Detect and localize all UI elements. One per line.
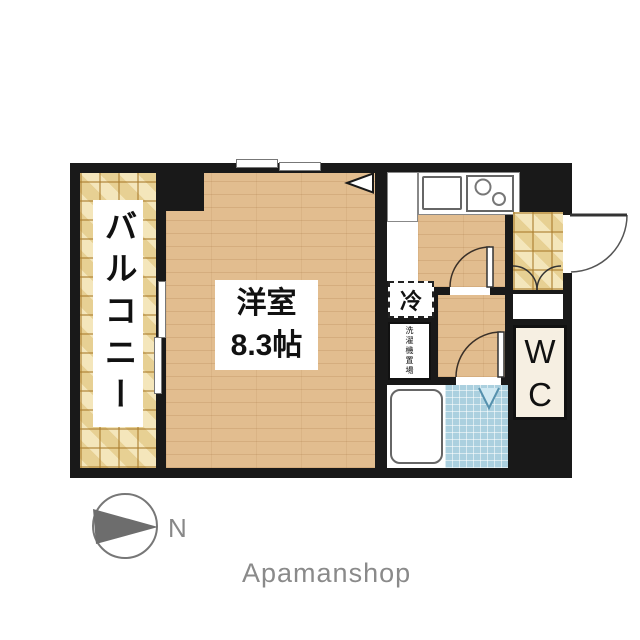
wc-letter-c: C	[528, 373, 552, 416]
wc-letter-w: W	[524, 330, 555, 373]
bathtub-icon	[390, 389, 443, 464]
compass-north-label: N	[168, 513, 187, 544]
balcony-window-pane-lower	[154, 337, 162, 394]
stove-icon	[466, 175, 514, 212]
compass-circle-icon	[93, 494, 157, 558]
brand-logo: Apamanshop	[242, 558, 411, 589]
kitchen-floor	[418, 215, 505, 287]
front-door-swing	[571, 215, 627, 272]
sink-icon	[422, 176, 462, 210]
laundry-space: 洗濯機置場	[388, 322, 431, 380]
hallway-floor	[438, 295, 505, 377]
kitchen-doorway	[450, 287, 490, 295]
floorplan-page: バルコニー 洋室 8.3帖 冷 洗濯機置場 W C	[0, 0, 640, 640]
entrance-genkan	[513, 212, 563, 290]
balcony-label: バルコニー	[93, 200, 143, 427]
front-door-opening	[563, 215, 572, 273]
main-room-label: 洋室 8.3帖	[215, 280, 318, 370]
top-window-pane-right	[279, 162, 321, 171]
shoe-closet	[513, 294, 563, 319]
fridge-space: 冷	[388, 281, 434, 318]
bathroom-tile-floor	[445, 385, 508, 468]
balcony-window-pane-upper	[158, 281, 166, 338]
wall-notch	[166, 173, 204, 211]
wc-room: W C	[513, 325, 567, 420]
top-window-pane-left	[236, 159, 278, 168]
kitchen-cabinet	[387, 172, 418, 222]
kitchen-cabinet-lower	[387, 222, 418, 281]
north-arrow-icon	[93, 509, 158, 544]
main-room-size: 8.3帖	[231, 325, 303, 367]
main-room-name: 洋室	[237, 283, 297, 325]
bathroom-doorway	[456, 377, 501, 385]
